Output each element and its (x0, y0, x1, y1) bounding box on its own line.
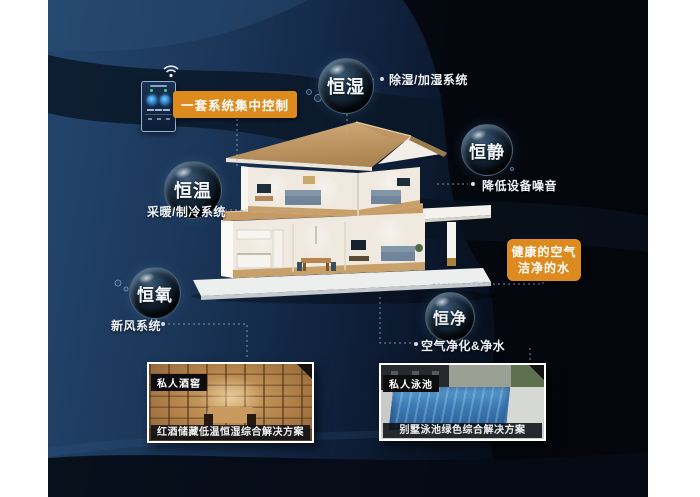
bubble-constant-oxygen: 恒氧 (129, 267, 181, 319)
dial-right (160, 95, 170, 105)
photo-card-wine-cellar: 私人酒窖 红酒储藏低温恒湿综合解决方案 (147, 362, 314, 443)
smart-control-panel (141, 81, 176, 132)
smart-home-poster: 一套系统集中控制 恒湿 恒静 恒温 恒氧 恒净 除湿/加湿系统 降低设备噪音 采… (0, 0, 700, 497)
panel-readout (145, 109, 172, 111)
pool-caption: 别墅泳池绿色综合解决方案 (383, 423, 542, 438)
bubble-constant-quiet: 恒静 (461, 124, 513, 176)
panel-title-bar (150, 85, 166, 87)
wifi-icon (162, 63, 180, 78)
callout-line-1: 健康的空气 (511, 244, 577, 260)
bubble-constant-quiet-title: 恒静 (469, 138, 505, 163)
wine-cellar-caption: 红酒储藏低温恒湿综合解决方案 (151, 425, 310, 440)
note-dehumidify-system: 除湿/加湿系统 (389, 71, 468, 88)
dial-left (147, 95, 157, 105)
panel-divider (145, 114, 172, 115)
pool-fence (449, 365, 511, 387)
pool-tag: 私人泳池 (383, 375, 439, 392)
bubble-constant-humidity-title: 恒湿 (327, 73, 365, 99)
bubble-constant-clean-title: 恒净 (433, 305, 467, 329)
bubble-constant-oxygen-title: 恒氧 (137, 281, 173, 306)
note-noise-reduction: 降低设备噪音 (482, 177, 557, 194)
corner-ribbon (297, 364, 312, 379)
panel-buttons (145, 118, 172, 120)
panel-status-lights (145, 89, 172, 92)
bubble-constant-clean: 恒净 (425, 292, 475, 342)
callout-line-2: 洁净的水 (511, 260, 577, 276)
bubble-constant-temperature-title: 恒温 (174, 177, 212, 203)
note-heating-cooling: 采暖/制冷系统 (147, 203, 226, 220)
corner-ribbon (529, 365, 544, 380)
photo-card-private-pool: 私人泳池 别墅泳池绿色综合解决方案 (379, 363, 546, 441)
panel-dials (145, 95, 172, 105)
healthy-air-water-callout: 健康的空气 洁净的水 (507, 239, 581, 281)
bubble-constant-humidity: 恒湿 (318, 58, 374, 114)
central-control-label: 一套系统集中控制 (173, 91, 297, 118)
wine-cellar-tag: 私人酒窖 (151, 374, 207, 391)
note-purification: 空气净化&净水 (421, 337, 505, 354)
note-fresh-air: 新风系统 (111, 317, 161, 334)
